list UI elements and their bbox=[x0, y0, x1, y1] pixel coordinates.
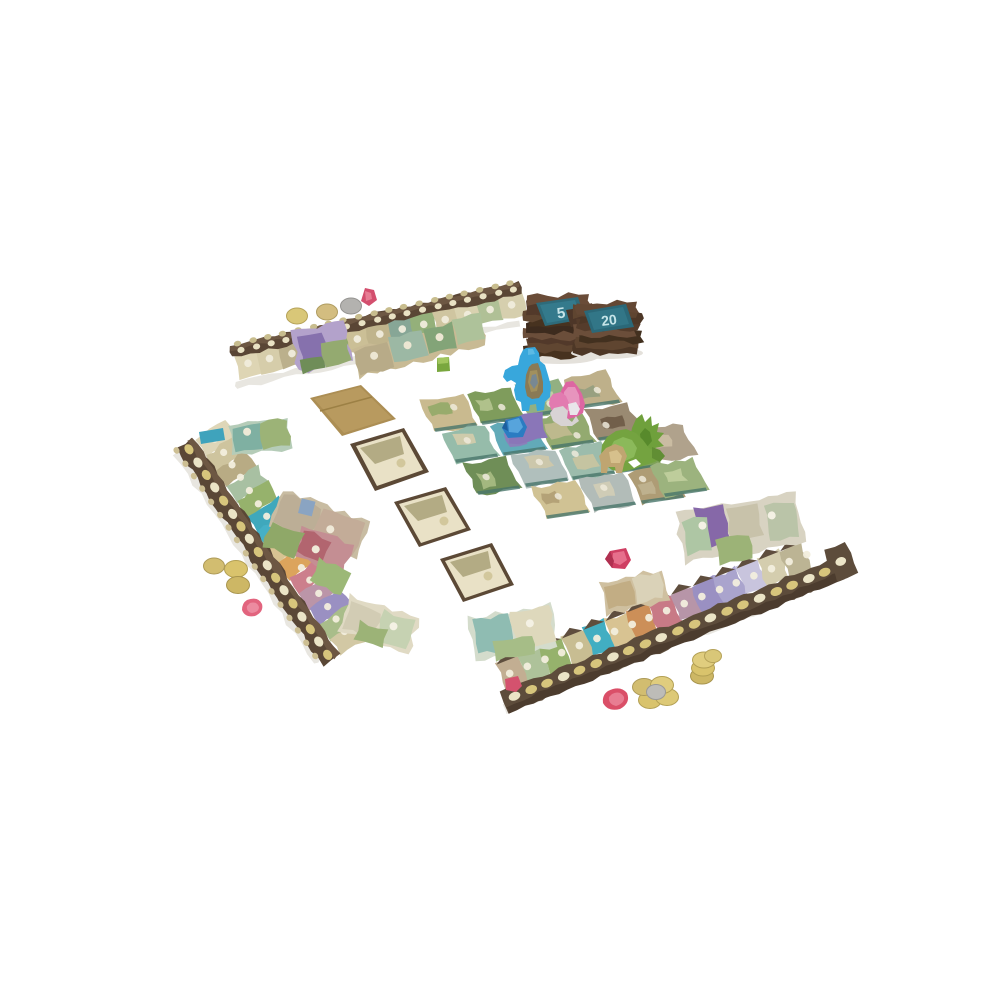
svg-text:20: 20 bbox=[600, 311, 618, 329]
